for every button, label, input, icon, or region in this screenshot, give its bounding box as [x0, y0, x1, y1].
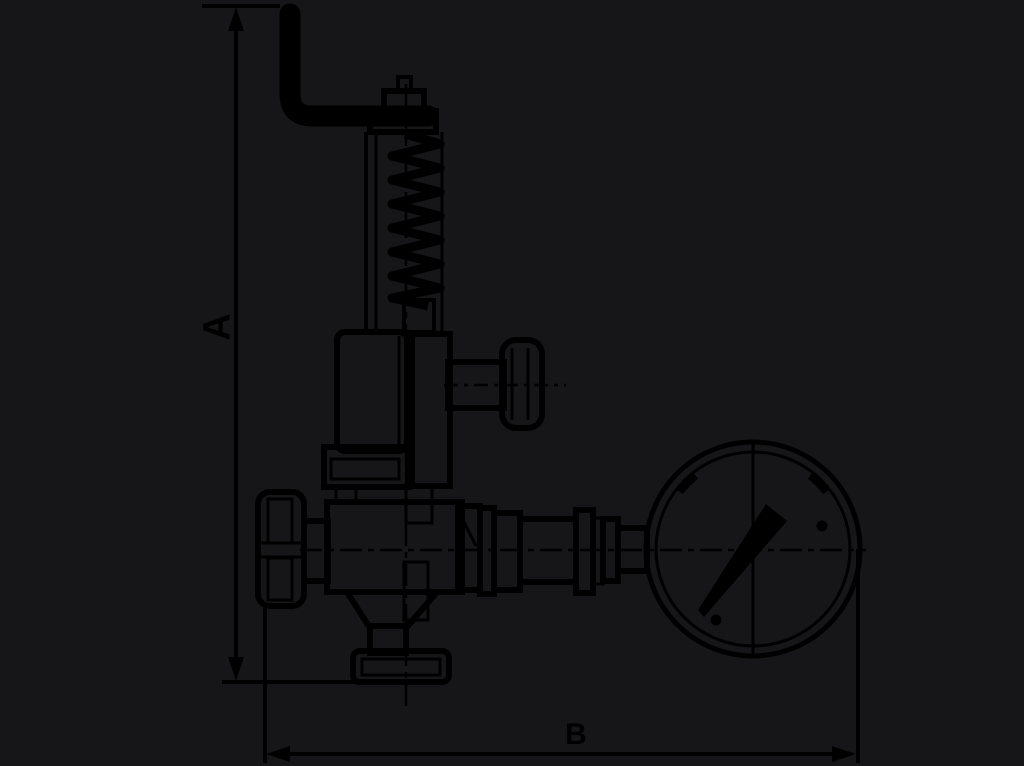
valve-with-gauge-technical-drawing: A B	[0, 0, 1024, 766]
arrow-up	[228, 7, 244, 31]
dial-tick-right	[810, 476, 826, 492]
bonnet	[324, 332, 450, 523]
lever-tube	[290, 14, 428, 116]
body-cone	[347, 592, 437, 628]
centerlines	[300, 84, 866, 708]
arrow-left	[266, 746, 290, 762]
arrow-right	[832, 746, 856, 762]
dial-screw-left	[711, 615, 722, 626]
dimension-a-label: A	[196, 313, 238, 340]
handwheel-rim	[258, 492, 304, 606]
spring-coil	[392, 134, 440, 306]
technical-drawing-page: A B	[0, 0, 1024, 766]
dimension-b-label: B	[565, 718, 587, 751]
union-flange-2	[576, 510, 593, 593]
handwheel-hub-lines	[258, 543, 304, 557]
dial-tick-left	[680, 476, 696, 492]
spindle-column	[412, 334, 450, 486]
body-block	[327, 502, 462, 592]
handwheel-spoke-top	[268, 499, 292, 543]
arrow-down	[228, 657, 244, 681]
lift-lever	[290, 14, 428, 116]
bonnet-flange-inner	[331, 459, 399, 479]
handwheel-spoke-bottom	[268, 558, 292, 600]
dial-screw-right	[817, 521, 828, 532]
valve-body	[327, 502, 480, 682]
bonnet-chamber	[337, 332, 407, 451]
gauge-needle	[698, 504, 787, 617]
outlet-flange-inner	[362, 659, 440, 675]
union-nut	[494, 513, 520, 590]
